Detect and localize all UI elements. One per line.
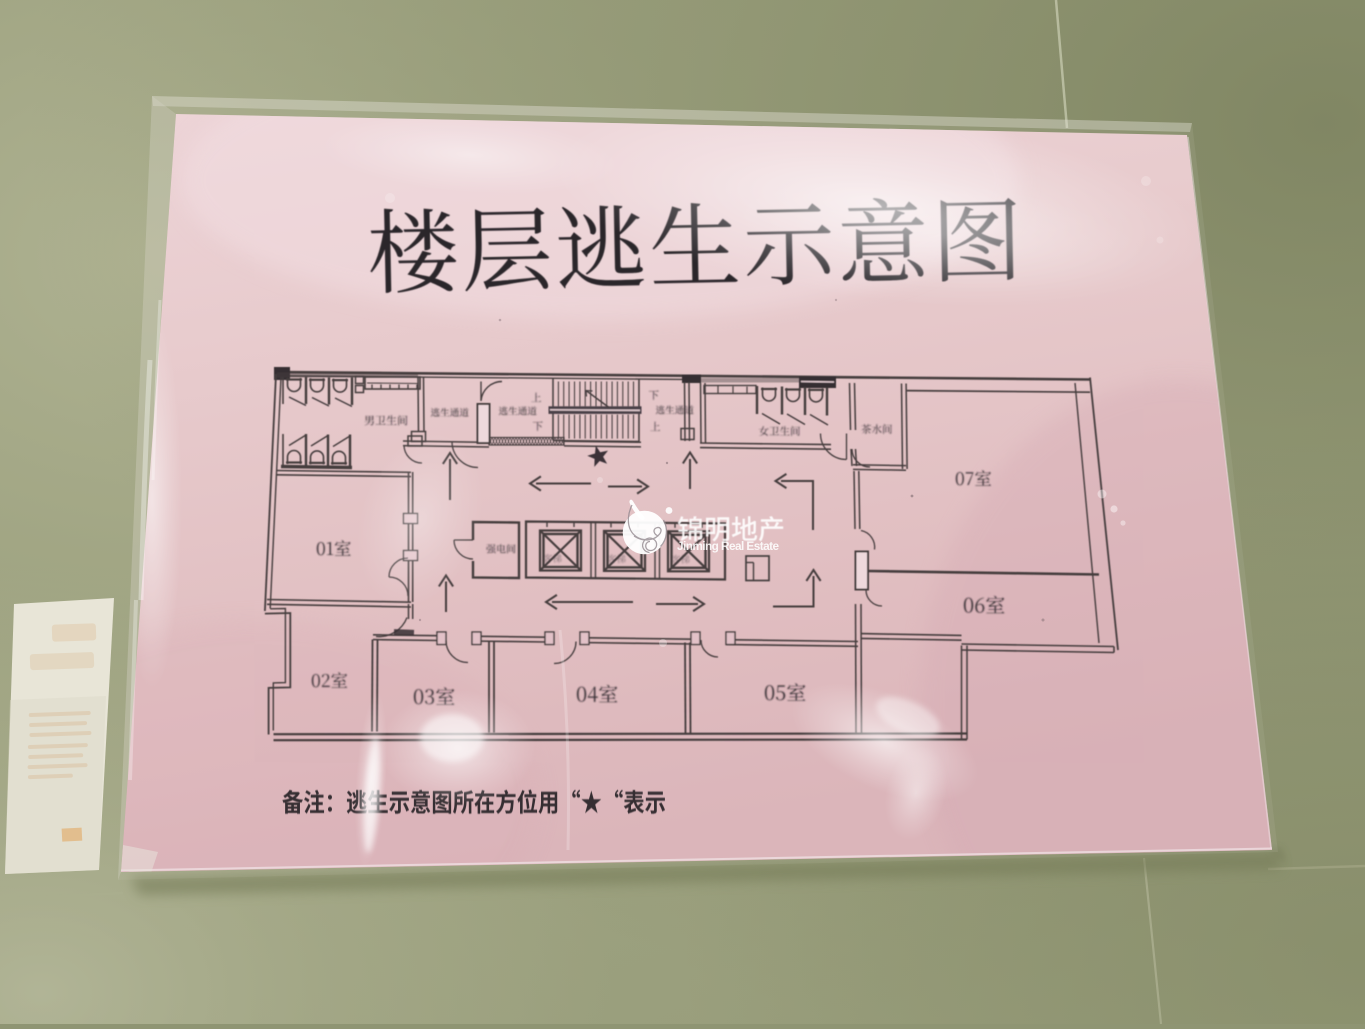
svg-text:Jinming Real Estate: Jinming Real Estate <box>677 539 779 553</box>
